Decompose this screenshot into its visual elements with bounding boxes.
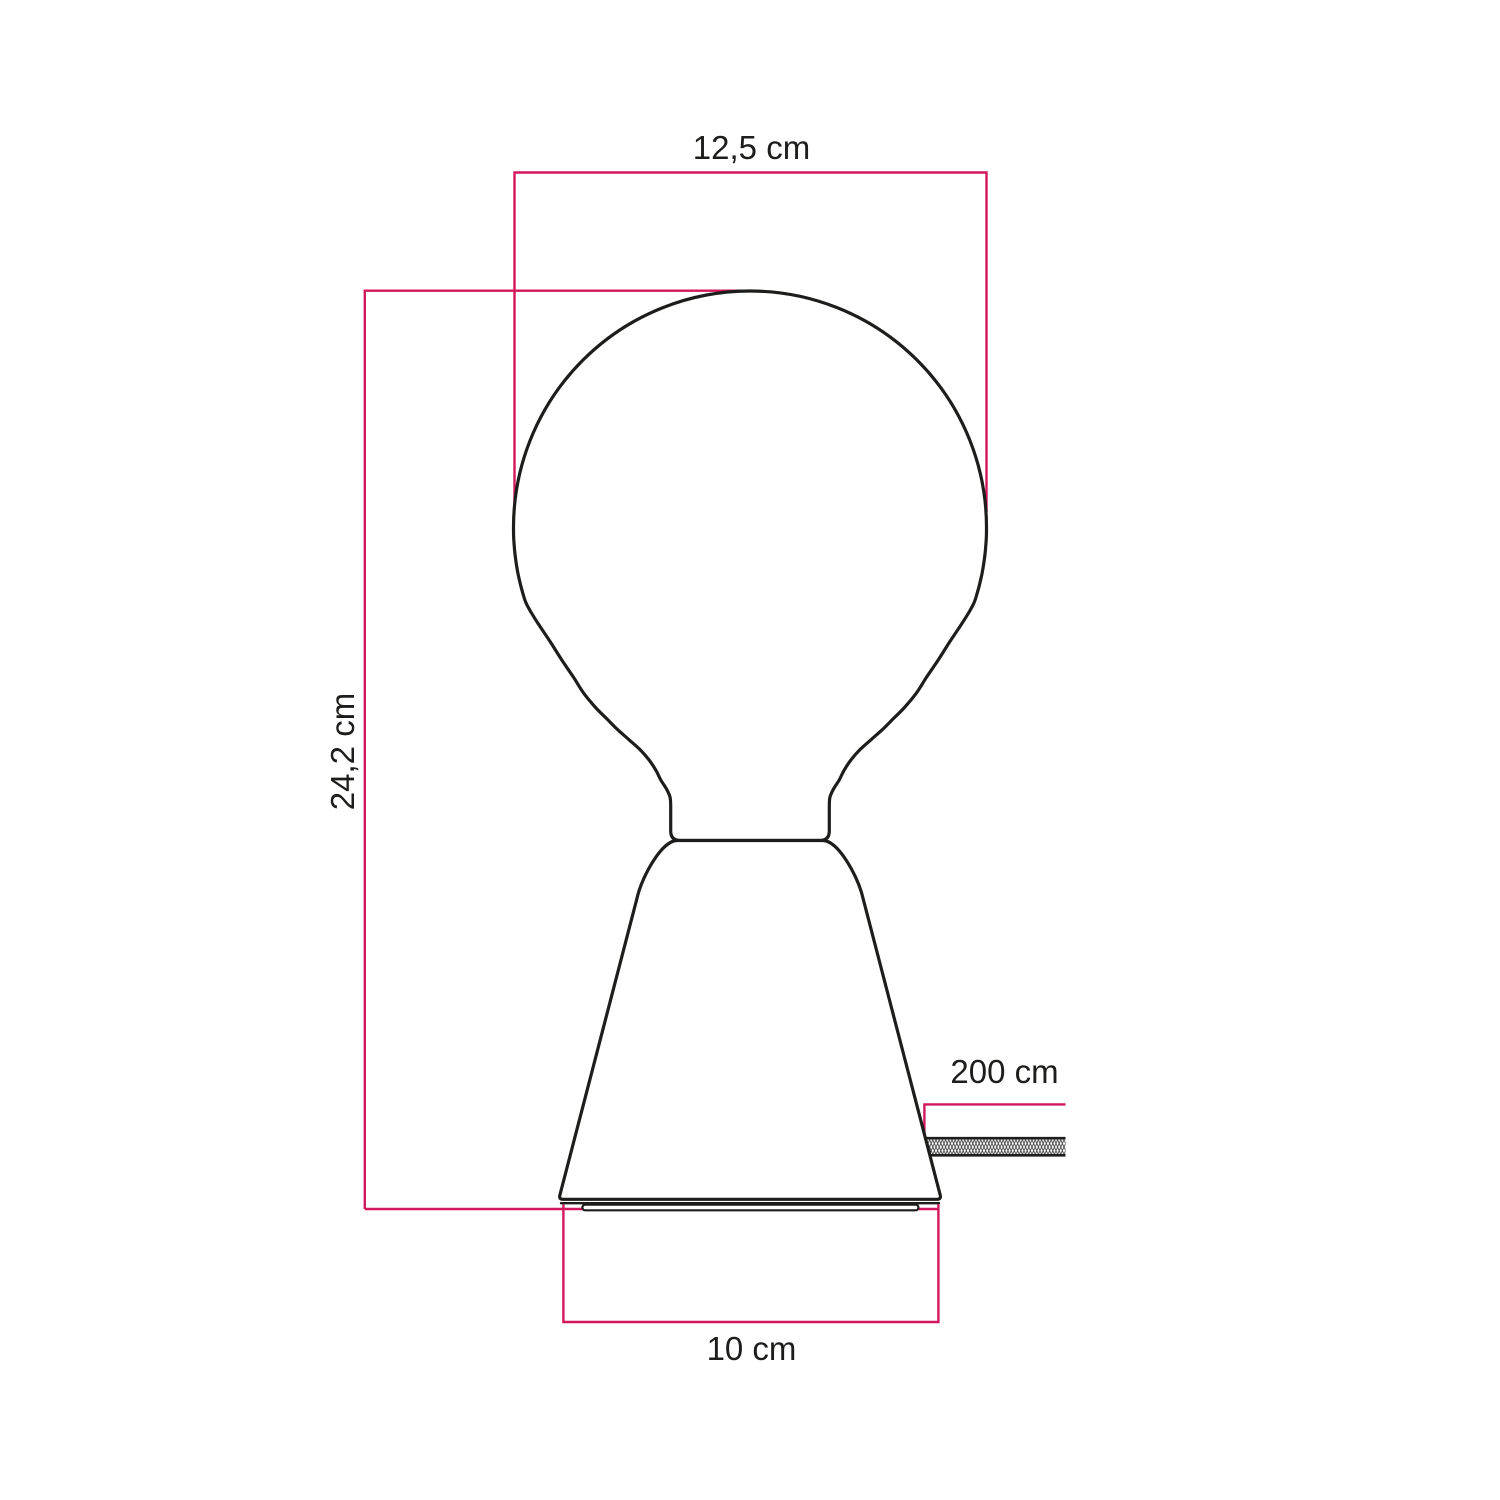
svg-text:12,5 cm: 12,5 cm bbox=[693, 129, 810, 166]
svg-text:200 cm: 200 cm bbox=[950, 1053, 1058, 1090]
svg-text:24,2 cm: 24,2 cm bbox=[324, 693, 361, 810]
svg-text:10 cm: 10 cm bbox=[707, 1330, 797, 1367]
